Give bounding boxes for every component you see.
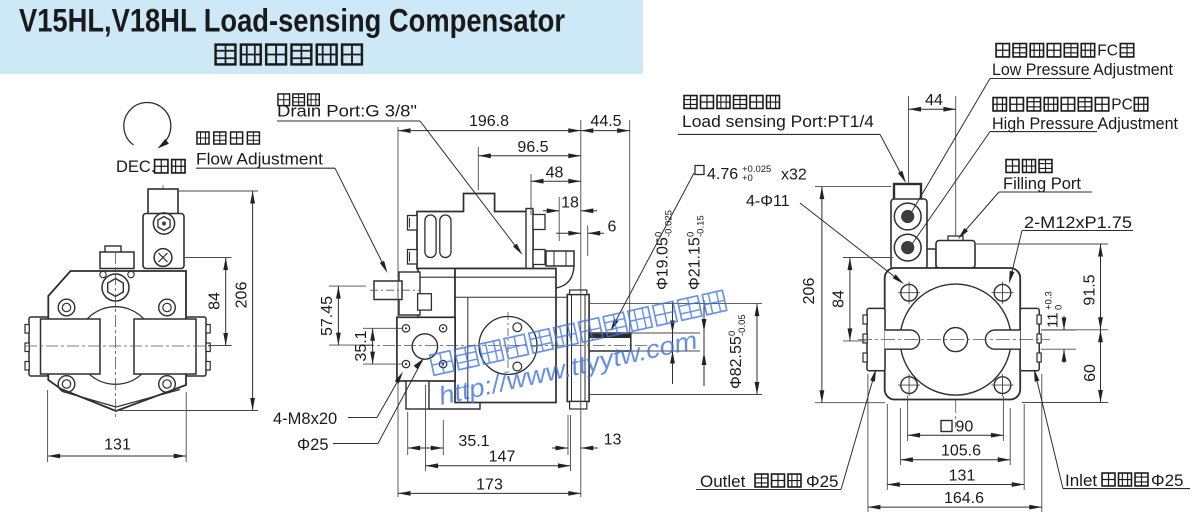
svg-text:60: 60: [1082, 364, 1099, 382]
svg-text:Load sensing Port:PT1/4: Load sensing Port:PT1/4: [682, 112, 874, 131]
svg-text:High Pressure Adjustment: High Pressure Adjustment: [992, 114, 1178, 133]
svg-text:6: 6: [608, 218, 617, 235]
svg-text:90: 90: [956, 419, 974, 436]
svg-text:48: 48: [546, 165, 564, 182]
svg-text:4-M8x20: 4-M8x20: [273, 410, 337, 428]
svg-text:18: 18: [561, 195, 579, 212]
svg-text:11: 11: [1045, 312, 1062, 328]
svg-text:96.5: 96.5: [517, 139, 548, 156]
svg-text:84: 84: [831, 290, 848, 308]
svg-text:Flow Adjustment: Flow Adjustment: [196, 150, 323, 169]
svg-text:-0.15: -0.15: [696, 215, 707, 237]
svg-text:44: 44: [925, 92, 943, 109]
svg-text:2-M12xP1.75: 2-M12xP1.75: [1024, 213, 1132, 232]
svg-text:206: 206: [801, 278, 818, 305]
svg-text:-0.025: -0.025: [664, 210, 675, 237]
svg-text:0: 0: [1054, 305, 1065, 310]
svg-text:FC: FC: [1097, 43, 1118, 60]
svg-text:DEC.: DEC.: [116, 158, 155, 176]
svg-text:Outlet: Outlet: [700, 472, 746, 491]
svg-text:Φ82.55: Φ82.55: [728, 336, 745, 389]
svg-text:Low Pressure Adjustment: Low Pressure Adjustment: [992, 60, 1173, 79]
svg-text:196.8: 196.8: [469, 113, 509, 130]
svg-text:4.76: 4.76: [707, 166, 738, 183]
svg-text:44.5: 44.5: [590, 113, 621, 130]
svg-text:35.1: 35.1: [458, 433, 489, 450]
svg-text:-0.05: -0.05: [737, 314, 748, 336]
svg-text:Φ25: Φ25: [806, 472, 838, 491]
svg-text:57.45: 57.45: [319, 296, 336, 336]
svg-text:Φ25: Φ25: [1151, 471, 1183, 490]
svg-text:Drain Port:G 3/8": Drain Port:G 3/8": [277, 102, 417, 121]
svg-text:105.6: 105.6: [941, 443, 981, 460]
svg-text:4-Φ11: 4-Φ11: [746, 193, 790, 210]
svg-text:173: 173: [476, 477, 503, 494]
svg-text:x32: x32: [781, 167, 807, 184]
svg-text:35.1: 35.1: [353, 330, 370, 361]
svg-text:PC: PC: [1111, 97, 1133, 114]
svg-text:91.5: 91.5: [1081, 274, 1098, 305]
svg-text:Inlet: Inlet: [1065, 471, 1097, 490]
svg-text:147: 147: [489, 449, 516, 466]
svg-text:V15HL,V18HL Load-sensing Compe: V15HL,V18HL Load-sensing Compensator: [19, 3, 565, 39]
svg-text:164.6: 164.6: [944, 490, 984, 507]
svg-text:131: 131: [949, 468, 976, 485]
svg-text:Φ19.05: Φ19.05: [655, 237, 672, 290]
svg-text:13: 13: [604, 432, 622, 449]
svg-text:Φ21.15: Φ21.15: [687, 237, 704, 290]
svg-text:84: 84: [207, 292, 224, 310]
svg-text:Filling Port: Filling Port: [1003, 174, 1081, 193]
svg-text:131: 131: [104, 437, 131, 454]
svg-text:Φ25: Φ25: [297, 436, 329, 454]
svg-text:206: 206: [233, 282, 250, 309]
svg-text:+0: +0: [742, 173, 753, 184]
